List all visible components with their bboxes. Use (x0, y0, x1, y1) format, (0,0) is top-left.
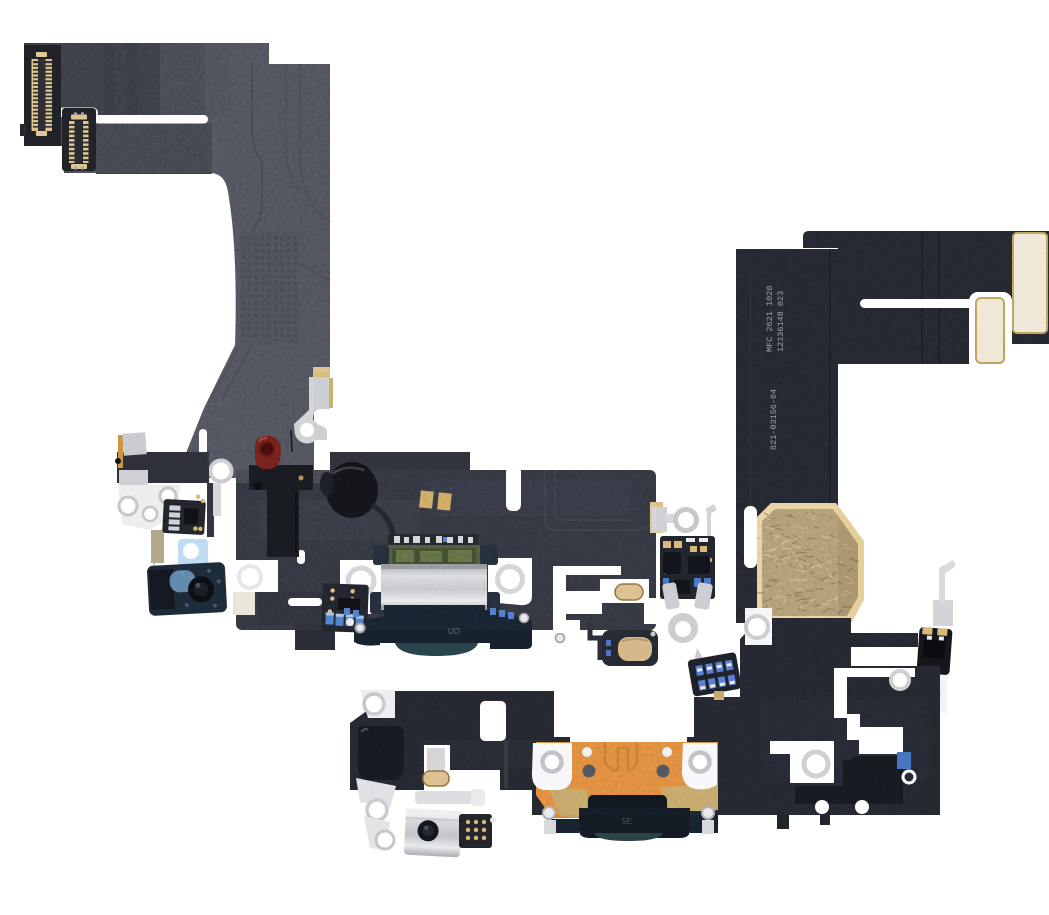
svg-text:5E: 5E (622, 817, 632, 826)
